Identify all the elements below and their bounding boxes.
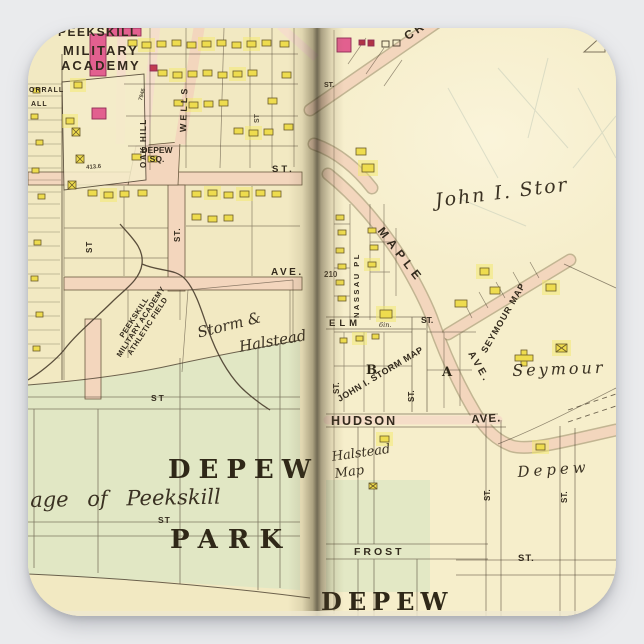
label-ave: AVE.: [271, 268, 304, 279]
label-wells-street: WELLS: [179, 86, 190, 133]
label-210: 210: [324, 271, 337, 279]
label-depew-square: DEPEW SQ.: [136, 146, 178, 164]
page-bottom-edge: [28, 611, 616, 616]
label-st-vertical-e: ST.: [484, 489, 492, 501]
product-image: PEEKSKILL MILITARY ACADEMY ORRALL ALL OA…: [0, 0, 644, 644]
label-nassau-pl-street: NASSAU PL: [353, 252, 361, 318]
label-st-park-upper: ST: [151, 394, 166, 403]
label-6in: 6in.: [379, 322, 391, 329]
label-st-frost: ST.: [518, 554, 535, 564]
label-st-main: ST.: [272, 165, 295, 175]
label-elm-street: ELM: [329, 319, 361, 329]
label-depew-park-title: DEPEW: [168, 457, 319, 484]
label-village-of-peekskill: age of Peekskill: [30, 486, 221, 511]
label-hudson-street: HUDSON: [331, 415, 397, 428]
label-academy: ACADEMY: [61, 59, 141, 73]
label-st-gutter: ST.: [324, 82, 334, 89]
label-st-vertical-b: ST.: [174, 227, 182, 242]
label-st-elm-right: ST.: [421, 316, 433, 325]
label-4136: 413.6: [86, 164, 101, 171]
label-st-vertical-top: ST: [254, 114, 261, 123]
label-st-vertical-a: ST: [86, 241, 94, 253]
label-frost-street: FROST: [354, 547, 405, 558]
label-st-vertical-c: ST.: [408, 390, 416, 402]
map-sticker: PEEKSKILL MILITARY ACADEMY ORRALL ALL OA…: [28, 28, 616, 616]
label-block-a: A: [442, 366, 452, 380]
label-peekskill: PEEKSKILL: [58, 28, 139, 39]
label-st-vertical-f: ST.: [561, 491, 569, 503]
label-st-vertical-d: ST.: [333, 382, 341, 394]
label-military: MILITARY: [63, 44, 139, 58]
label-orrall: ORRALL: [29, 87, 64, 94]
label-hall: ALL: [31, 101, 48, 108]
label-park-title: PARK: [170, 527, 292, 554]
label-hudson-ave: AVE.: [471, 412, 502, 426]
label-st-park-small: ST: [158, 516, 171, 525]
label-block-b: B: [366, 364, 377, 378]
label-seymour: Seymour: [512, 360, 606, 380]
map-artwork: [28, 28, 616, 616]
